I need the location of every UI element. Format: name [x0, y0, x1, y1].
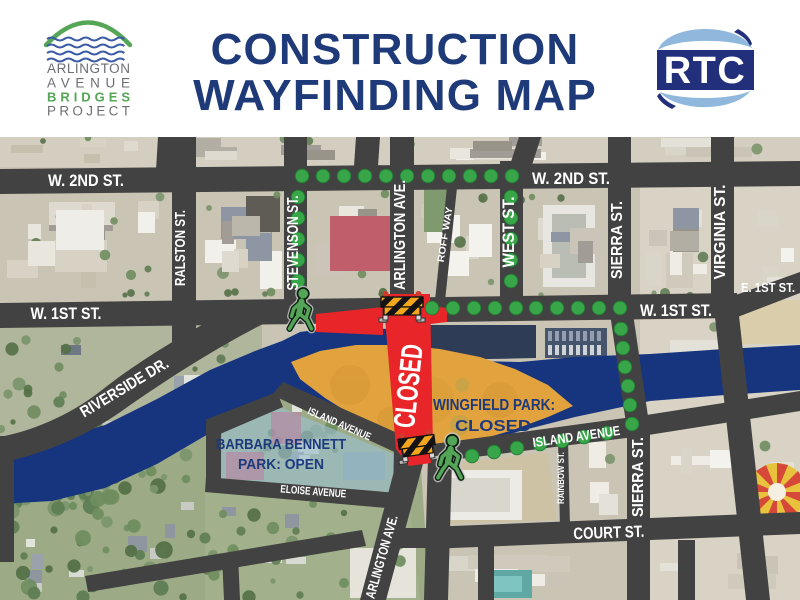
svg-text:BARBARA BENNETT: BARBARA BENNETT	[216, 436, 346, 453]
svg-text:VIRGINIA ST.: VIRGINIA ST.	[712, 185, 729, 280]
svg-text:WINGFIELD PARK:: WINGFIELD PARK:	[433, 397, 555, 414]
svg-text:W. 1ST ST.: W. 1ST ST.	[640, 302, 712, 320]
svg-text:ARLINGTON AVE.: ARLINGTON AVE.	[392, 180, 409, 290]
svg-text:W. 1ST ST.: W. 1ST ST.	[31, 305, 102, 323]
svg-text:W. 2ND ST.: W. 2ND ST.	[532, 170, 610, 188]
svg-text:SIERRA ST.: SIERRA ST.	[630, 437, 647, 517]
svg-text:STEVENSON ST.: STEVENSON ST.	[285, 196, 302, 291]
svg-text:COURT ST.: COURT ST.	[573, 523, 645, 543]
svg-text:WEST ST.: WEST ST.	[500, 197, 518, 268]
svg-text:E. 1ST ST.: E. 1ST ST.	[741, 281, 795, 295]
svg-text:CLOSED: CLOSED	[455, 418, 531, 435]
svg-text:RALSTON ST.: RALSTON ST.	[172, 210, 189, 286]
svg-text:W. 2ND ST.: W. 2ND ST.	[48, 172, 124, 190]
svg-text:PARK: OPEN: PARK: OPEN	[238, 456, 324, 473]
svg-text:RAINBOW ST.: RAINBOW ST.	[556, 452, 567, 504]
svg-text:SIERRA ST.: SIERRA ST.	[609, 201, 626, 279]
svg-text:RTC: RTC	[664, 50, 747, 92]
